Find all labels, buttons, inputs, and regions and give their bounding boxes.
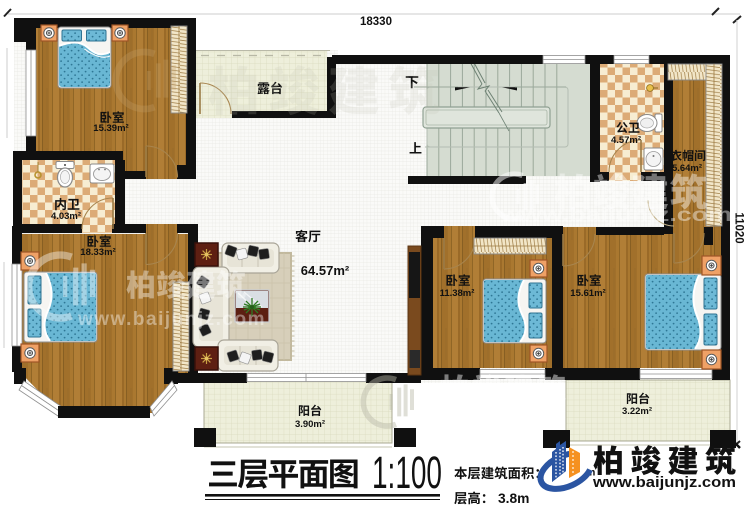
svg-text:18330: 18330 xyxy=(360,16,392,28)
svg-text:3.22m²: 3.22m² xyxy=(622,406,652,417)
svg-text:3.90m²: 3.90m² xyxy=(295,419,325,430)
svg-text:15.61m²: 15.61m² xyxy=(570,288,605,299)
svg-text:4.03m²: 4.03m² xyxy=(51,211,81,222)
svg-text:www.baijunjz.com: www.baijunjz.com xyxy=(77,309,266,330)
svg-text:3.8m: 3.8m xyxy=(498,491,529,506)
svg-text:15.39m²: 15.39m² xyxy=(93,123,128,134)
svg-text:18.33m²: 18.33m² xyxy=(80,247,115,258)
svg-text:4.57m²: 4.57m² xyxy=(611,135,641,146)
svg-text:11.38m²: 11.38m² xyxy=(440,288,475,299)
svg-text:5.64m²: 5.64m² xyxy=(672,163,702,174)
svg-text:1:100: 1:100 xyxy=(372,447,442,498)
svg-text:11020: 11020 xyxy=(733,212,745,243)
svg-text:www.baijunjz.com: www.baijunjz.com xyxy=(499,204,732,226)
svg-text:64.57m²: 64.57m² xyxy=(301,263,350,278)
svg-text:www.baijunjz.com: www.baijunjz.com xyxy=(592,474,736,491)
